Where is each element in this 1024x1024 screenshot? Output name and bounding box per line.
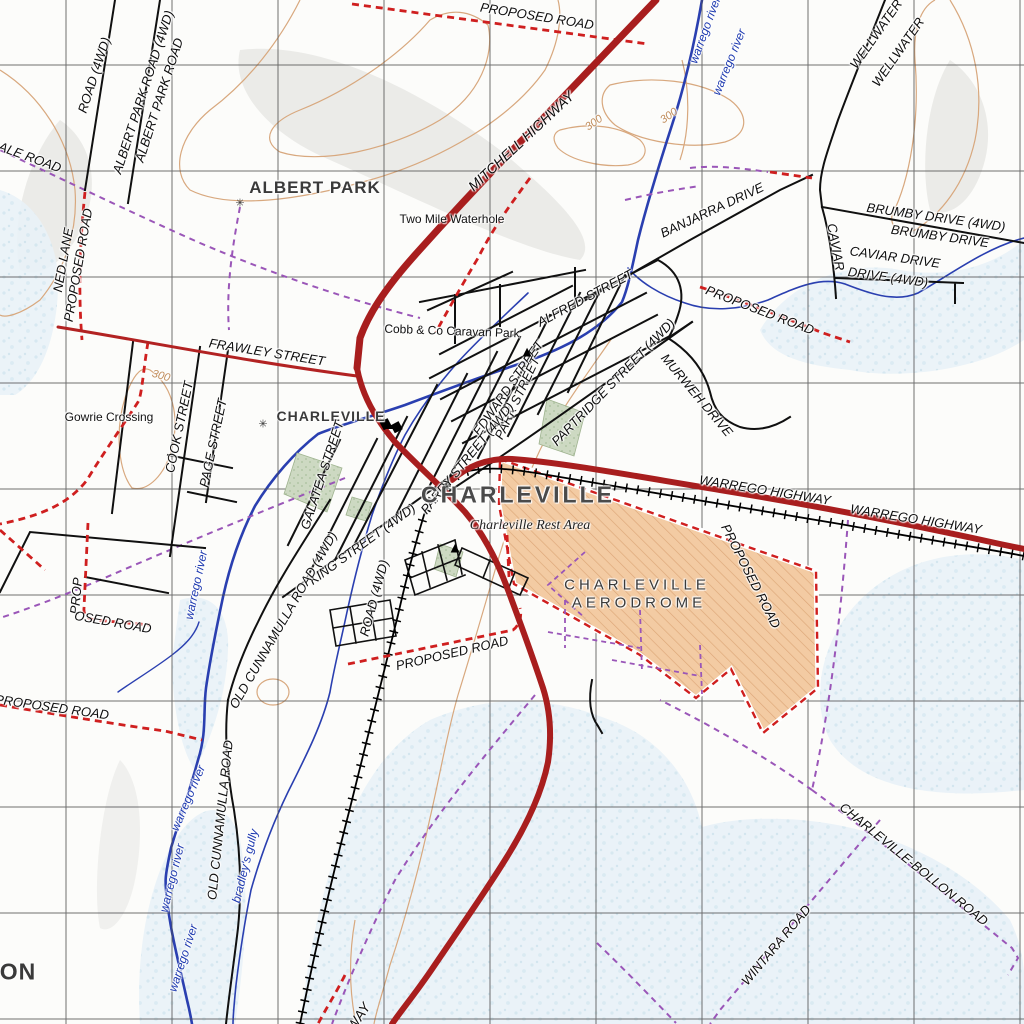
topographic-map-canvas[interactable]: ALE ROADROAD (4WD)ALBERT PARK ROAD (4WD)… <box>0 0 1024 1024</box>
frawley-street <box>58 327 357 376</box>
map-graphics <box>0 0 1024 1024</box>
